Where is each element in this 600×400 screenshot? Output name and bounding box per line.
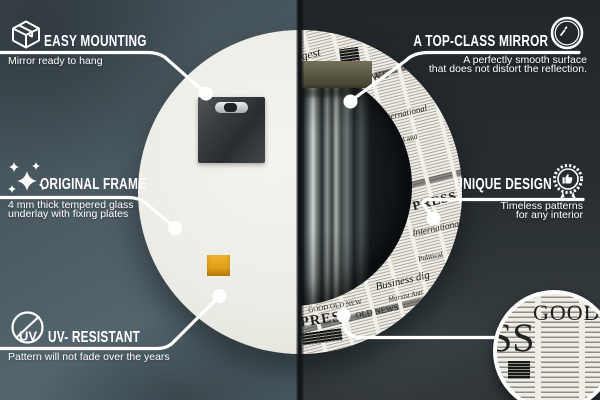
easy-mounting-title: EASY MOUNTING bbox=[44, 35, 183, 49]
mounting-plate bbox=[198, 97, 265, 163]
easy-mounting-subtitle: Mirror ready to hang bbox=[8, 57, 103, 66]
uv-icon-text: UV bbox=[19, 329, 37, 344]
label-sticker bbox=[207, 255, 230, 276]
uv-resistant-title: UV- RESISTANT bbox=[48, 331, 173, 345]
top-class-mirror-title-text: A TOP-CLASS MIRROR bbox=[413, 35, 548, 49]
pattern-detail-circle: GOOD SS bbox=[493, 290, 600, 400]
detail-ad-block bbox=[505, 358, 533, 382]
sparkles-icon bbox=[6, 158, 44, 196]
photo-split-seam bbox=[296, 0, 304, 400]
original-frame-title-text: ORIGINAL FRAME bbox=[40, 178, 146, 192]
mirror-back-panel bbox=[138, 30, 300, 354]
original-frame-subtitle: 4 mm thick tempered glass underlay with … bbox=[8, 201, 133, 219]
unique-design-subtitle: Timeless patterns for any interior bbox=[501, 202, 583, 220]
unique-design-title-text: UNIQUE DESIGN bbox=[454, 178, 552, 192]
top-class-mirror-subtitle-line2: that does not distort the reflection. bbox=[429, 65, 587, 74]
uv-resistant-title-text: UV- RESISTANT bbox=[48, 331, 140, 345]
uv-icon: UV bbox=[8, 308, 48, 348]
box-icon bbox=[8, 16, 44, 52]
award-badge-icon bbox=[550, 163, 586, 201]
reflected-shelf-shadow bbox=[300, 88, 364, 97]
original-frame-title: ORIGINAL FRAME bbox=[40, 178, 183, 192]
top-class-mirror-title: A TOP-CLASS MIRROR bbox=[366, 35, 548, 49]
original-frame-subtitle-line2: underlay with fixing plates bbox=[8, 210, 133, 219]
reflected-shelf bbox=[300, 61, 372, 88]
unique-design-subtitle-line2: for any interior bbox=[501, 211, 583, 220]
mirror-icon bbox=[549, 15, 585, 51]
uv-resistant-subtitle: Pattern will not fade over the years bbox=[8, 353, 170, 362]
top-class-mirror-subtitle: A perfectly smooth surface that does not… bbox=[429, 56, 587, 74]
detail-word-good: GOOD bbox=[533, 300, 600, 326]
hanging-slot bbox=[215, 102, 248, 113]
easy-mounting-title-text: EASY MOUNTING bbox=[44, 35, 147, 49]
hanging-slot-notch bbox=[224, 103, 237, 112]
product-infographic: digest 2019 NEWS International Political… bbox=[0, 0, 600, 400]
unique-design-title: UNIQUE DESIGN bbox=[420, 178, 552, 192]
detail-word-ss: SS bbox=[493, 314, 535, 361]
